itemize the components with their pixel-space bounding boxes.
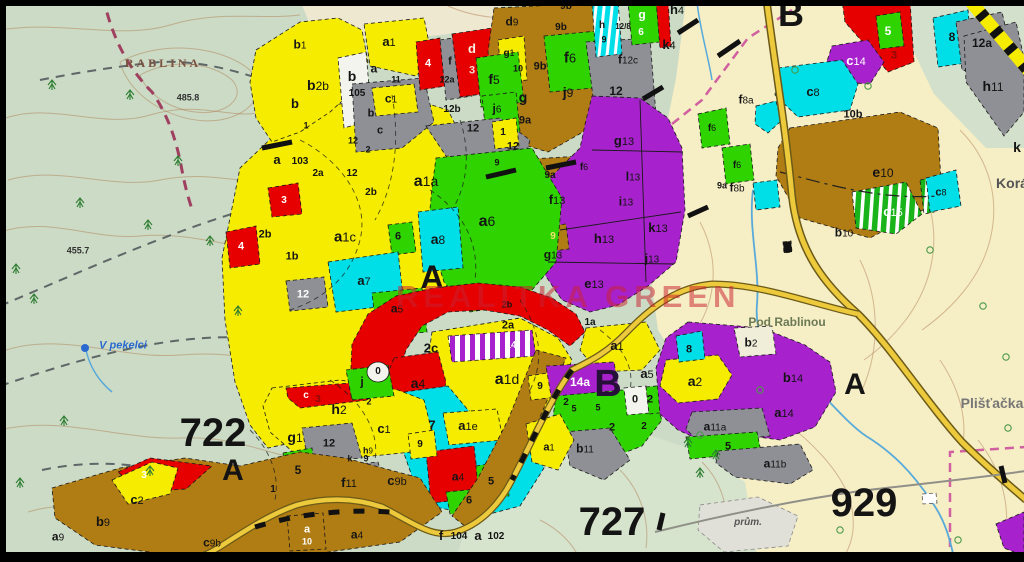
label-1b-292: 1b (286, 252, 299, 263)
label-9-497: 9 (494, 159, 499, 168)
label-929-864: 929 (831, 483, 898, 523)
label-8-952: 8 (949, 31, 956, 43)
label-6-641: 6 (638, 28, 644, 38)
label-f8a-746: f8a (738, 94, 753, 107)
label-104-459: 104 (451, 532, 468, 542)
label-k4-669: k4 (662, 38, 675, 52)
label-5-574: 5 (571, 405, 576, 414)
label-9-420: 9 (417, 440, 423, 450)
label-12a-982: 12a (972, 37, 992, 49)
label-a4-458: a4 (452, 471, 464, 484)
label-1-273: 1 (270, 485, 276, 495)
label-f12c-628: f12c (618, 54, 638, 67)
label-a11b-775: a11b (764, 458, 787, 471)
label-5-598: 5 (595, 404, 600, 413)
label-2-644: 2 (641, 422, 647, 432)
label-a8-438: a8 (431, 232, 445, 246)
label-k-1017: k (1013, 140, 1021, 154)
label-1a-590: 1a (584, 318, 595, 328)
label-12-473: 12 (467, 124, 479, 135)
label-9-604: 9 (601, 36, 606, 45)
label-pr-m--748: prům. (734, 518, 762, 528)
label-g1-509: g1 (503, 49, 514, 59)
label-4-428: 4 (425, 59, 431, 70)
label-5-298: 5 (295, 464, 302, 476)
label-6-398: 6 (395, 232, 401, 243)
label-722-213: 722 (180, 413, 247, 453)
watermark: REALITKA GREEN (396, 279, 740, 315)
building-white (922, 493, 937, 504)
label-7-432: 7 (428, 419, 435, 432)
label-9b-540: 9b (534, 62, 547, 73)
label-h13-604: h13 (594, 232, 614, 246)
letterbox-top (0, 0, 1024, 6)
label-2-612: 2 (609, 423, 615, 434)
label-2-650: 2 (647, 395, 653, 406)
label-12-303: 12 (297, 290, 309, 301)
label-12-8-623: 12/8 (615, 23, 631, 31)
label-3-284: 3 (281, 196, 287, 206)
label-c8-941: c8 (935, 188, 946, 199)
label-e10-883: e10 (872, 165, 893, 179)
label-a2-695: a2 (688, 374, 702, 388)
building-black (783, 241, 792, 253)
label-c-306: c (303, 391, 309, 401)
label-a1-617: a1 (610, 339, 623, 353)
label-a1a-426: a1a (414, 174, 438, 190)
label-b2b-318: b2b (307, 78, 329, 92)
label-2a-318: 2a (312, 169, 323, 179)
label-f13-557: f13 (549, 193, 566, 207)
label-f6-737: f6 (733, 161, 741, 171)
label-g-523: g (519, 90, 528, 104)
label-b11-585: b11 (576, 443, 594, 456)
label-a1e-468: a1e (458, 419, 477, 433)
label-9a-722: 9a (717, 182, 727, 191)
label-b-608: B (594, 365, 621, 403)
parcel-cyan-f8b (753, 180, 780, 210)
label-c14-856: c14 (846, 54, 865, 68)
label-5-728: 5 (725, 442, 731, 453)
label-14-511: 14 (505, 341, 516, 351)
label-c15-893: c15 (883, 205, 902, 219)
letterbox-bottom (0, 552, 1024, 562)
label-a14-784: a14 (774, 406, 793, 420)
label-105-357: 105 (349, 89, 366, 99)
label-12-329: 12 (323, 439, 335, 450)
label-a1-389: a1 (382, 35, 395, 49)
label-c1-391: c1 (385, 93, 397, 106)
label-14a-580: 14a (570, 376, 590, 388)
label-a4-418: a4 (411, 376, 425, 390)
label-2a-508: 2a (502, 321, 514, 332)
label-5-491: 5 (488, 477, 494, 488)
label-12-352: 12 (346, 169, 357, 179)
label-a-855: A (844, 370, 866, 400)
label-1-306: 1 (303, 122, 308, 131)
label-a7-364: a7 (357, 274, 370, 288)
label-0-635: 0 (632, 395, 638, 406)
label-2-369: 2 (366, 398, 371, 407)
label-j-362: j (360, 376, 363, 389)
parcel-green-6 (388, 222, 416, 255)
label-b-295: b (291, 97, 299, 111)
label-6-469: 6 (466, 496, 472, 507)
label-a1d-507: a1d (495, 372, 519, 388)
label-2b-265: 2b (259, 230, 272, 241)
label-2-368: 2 (365, 146, 370, 155)
label-485-8-188: 485.8 (177, 94, 200, 103)
label-9a-550: 9a (544, 171, 555, 181)
label-3-894: 3 (891, 51, 897, 62)
label-2c-431: 2c (424, 342, 438, 355)
label-rablina-163: RABLINA (125, 57, 201, 69)
label-10-307: 10 (302, 538, 312, 547)
label-9a-525: 9a (519, 116, 531, 127)
label-0-378: 0 (375, 367, 381, 377)
label-pli-a-ka-992: Plišťačka (961, 396, 1024, 410)
label-d-472: d (468, 42, 476, 56)
label-j9-568: j9 (563, 85, 574, 99)
label-12-513: 12 (507, 142, 519, 153)
label-a-478: a (474, 529, 481, 543)
label-f-450: f (448, 57, 452, 68)
label-g13-553: g13 (544, 249, 562, 262)
map-image: RABLINA485.8455.7V pekelciPod RablinouKo… (0, 0, 1024, 562)
label-f6-712: f6 (708, 124, 716, 134)
label-c9b-212: c9b (203, 537, 221, 550)
label-9b-561: 9b (555, 23, 567, 33)
label-3-472: 3 (469, 66, 475, 77)
label-j13-652: j13 (645, 253, 659, 266)
label-a11a-715: a11a (704, 421, 727, 434)
label-c2-137: c2 (130, 493, 143, 507)
label-b14-793: b14 (783, 371, 803, 385)
label-h11-993: h11 (982, 79, 1003, 93)
label-102-496: 102 (488, 532, 505, 542)
label-k-350: k (347, 455, 352, 464)
label-b9-103: b9 (96, 515, 110, 529)
label-l13-633: l13 (626, 171, 640, 184)
label-b1-300: b1 (294, 39, 307, 52)
label-727-612: 727 (579, 502, 646, 542)
label-f5-494: f5 (488, 72, 499, 86)
label-f8b-737: f8b (729, 182, 744, 195)
label-a1c-345: a1c (334, 230, 356, 245)
label-103-300: 103 (292, 157, 309, 167)
label-g1-295: g1 (287, 430, 302, 444)
label-9-553: 9 (550, 232, 556, 242)
label-a1-549: a1 (543, 443, 554, 454)
label-9-366: 9 (363, 455, 368, 464)
label-c9b-397: c9b (387, 474, 406, 488)
label-a-277: a (273, 153, 280, 167)
label-1-503: 1 (500, 128, 506, 138)
label-a-307: a (304, 525, 310, 536)
label-f-441: f (439, 529, 443, 543)
label-2b-371: 2b (365, 188, 377, 198)
label-c1-384: c1 (377, 422, 390, 436)
label-d9-512: d9 (506, 16, 519, 29)
label-c-380: c (377, 126, 383, 137)
letterbox-left (0, 0, 6, 562)
label-f6-570: f6 (564, 51, 576, 66)
label-f11-349: f11 (341, 476, 357, 490)
label-c8-813: c8 (806, 85, 819, 99)
label-h-602: h (599, 21, 605, 31)
label-11-396: 11 (391, 76, 401, 85)
label-a-374: a (371, 63, 378, 76)
label-4-241: 4 (238, 242, 244, 253)
label-5-888: 5 (885, 25, 892, 37)
label-a-233: A (222, 456, 244, 486)
label-3-144: 3 (141, 471, 147, 481)
label-b2-751: b2 (745, 337, 758, 350)
label-g-642: g (638, 9, 645, 22)
label-f6-584: f6 (580, 163, 588, 173)
label-pod-rablinou-787: Pod Rablinou (748, 316, 825, 328)
label-g13-624: g13 (614, 134, 634, 148)
label-b10-844: b10 (835, 227, 853, 240)
label-i13-626: i13 (619, 196, 633, 209)
label-a6-487: a6 (479, 214, 496, 230)
label-12-616: 12 (609, 85, 622, 97)
label-v-pekelci-123: V pekelci (99, 341, 147, 352)
label-h2-339: h2 (331, 402, 346, 416)
label-a5-647: a5 (640, 367, 653, 381)
label-kor--1012: Korá (996, 176, 1024, 190)
label-12a-447: 12a (439, 76, 454, 85)
label-12b-452: 12b (443, 105, 460, 115)
spring-dot (81, 344, 89, 352)
label-9-540: 9 (537, 382, 543, 392)
label-j6-497: j6 (493, 103, 502, 116)
label-3-318: 3 (315, 395, 321, 405)
label-b-371: b (368, 109, 375, 120)
label-12-353: 12 (348, 137, 358, 146)
label-8-689: 8 (686, 345, 692, 356)
label-10b-853: 10b (844, 110, 863, 121)
label-a4-357: a4 (351, 529, 363, 542)
label-a9-58: a9 (52, 531, 64, 544)
label-455-7-78: 455.7 (67, 247, 90, 256)
label-2-566: 2 (563, 398, 569, 408)
label-k13-658: k13 (648, 221, 667, 235)
label-10-518: 10 (513, 65, 523, 74)
label-b-352: b (348, 69, 357, 83)
